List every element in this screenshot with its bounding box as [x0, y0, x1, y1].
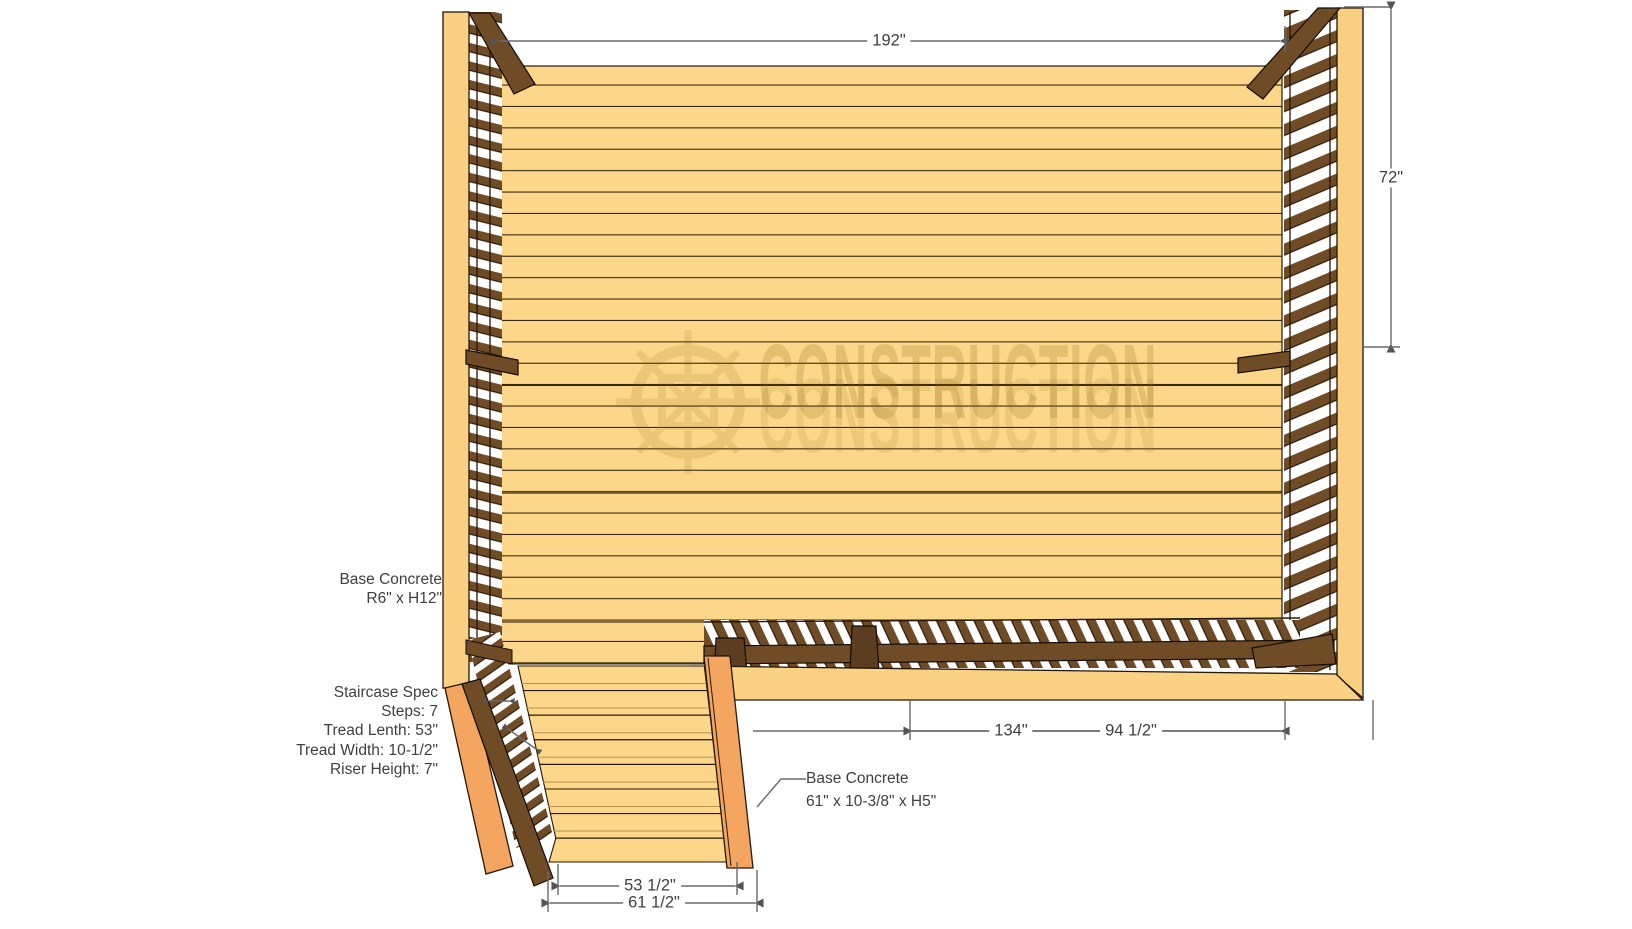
- left-post-band: [443, 12, 469, 688]
- right-post-band: [1337, 8, 1363, 698]
- annotation-line: R6" x H12": [339, 589, 442, 608]
- watermark: CONSTRUCTION CONSTRUCTION: [616, 324, 1157, 475]
- bottom-rail-post-mid: [850, 626, 879, 672]
- annotation-base-concrete-post: Base Concrete R6" x H12": [339, 570, 442, 608]
- watermark-text-echo: CONSTRUCTION: [759, 358, 1158, 475]
- dim-label-stair-base-run: 61 1/2": [623, 894, 685, 913]
- annotation-line: Base Concrete: [339, 570, 442, 589]
- dim-label-bottom-run-a: 134": [989, 722, 1032, 741]
- annotation-line: 61" x 10-3/8" x H5": [806, 791, 936, 814]
- annotation-staircase-spec: Staircase Spec Steps: 7 Tread Lenth: 53"…: [296, 683, 438, 779]
- plan-viewport: CONSTRUCTION CONSTRUCTION: [0, 0, 1632, 929]
- staircase: [445, 632, 753, 886]
- annotation-base-concrete-stairs: Base Concrete 61" x 10-3/8" x H5": [806, 768, 936, 813]
- annotation-line: Tread Width: 10-1/2": [296, 741, 438, 760]
- dim-label-deck-side: 72": [1374, 169, 1408, 188]
- front-fascia: [694, 666, 1363, 700]
- annotation-line: Riser Height: 7": [296, 760, 438, 779]
- annotation-line: Steps: 7: [296, 702, 438, 721]
- annotation-line: Staircase Spec: [296, 683, 438, 702]
- leader-base-concrete-stairs: [757, 779, 806, 807]
- dim-label-bottom-run-b: 94 1/2": [1100, 722, 1162, 741]
- annotation-line: Base Concrete: [806, 768, 936, 791]
- dim-label-deck-width: 192": [867, 32, 910, 51]
- annotation-line: Tread Lenth: 53": [296, 721, 438, 740]
